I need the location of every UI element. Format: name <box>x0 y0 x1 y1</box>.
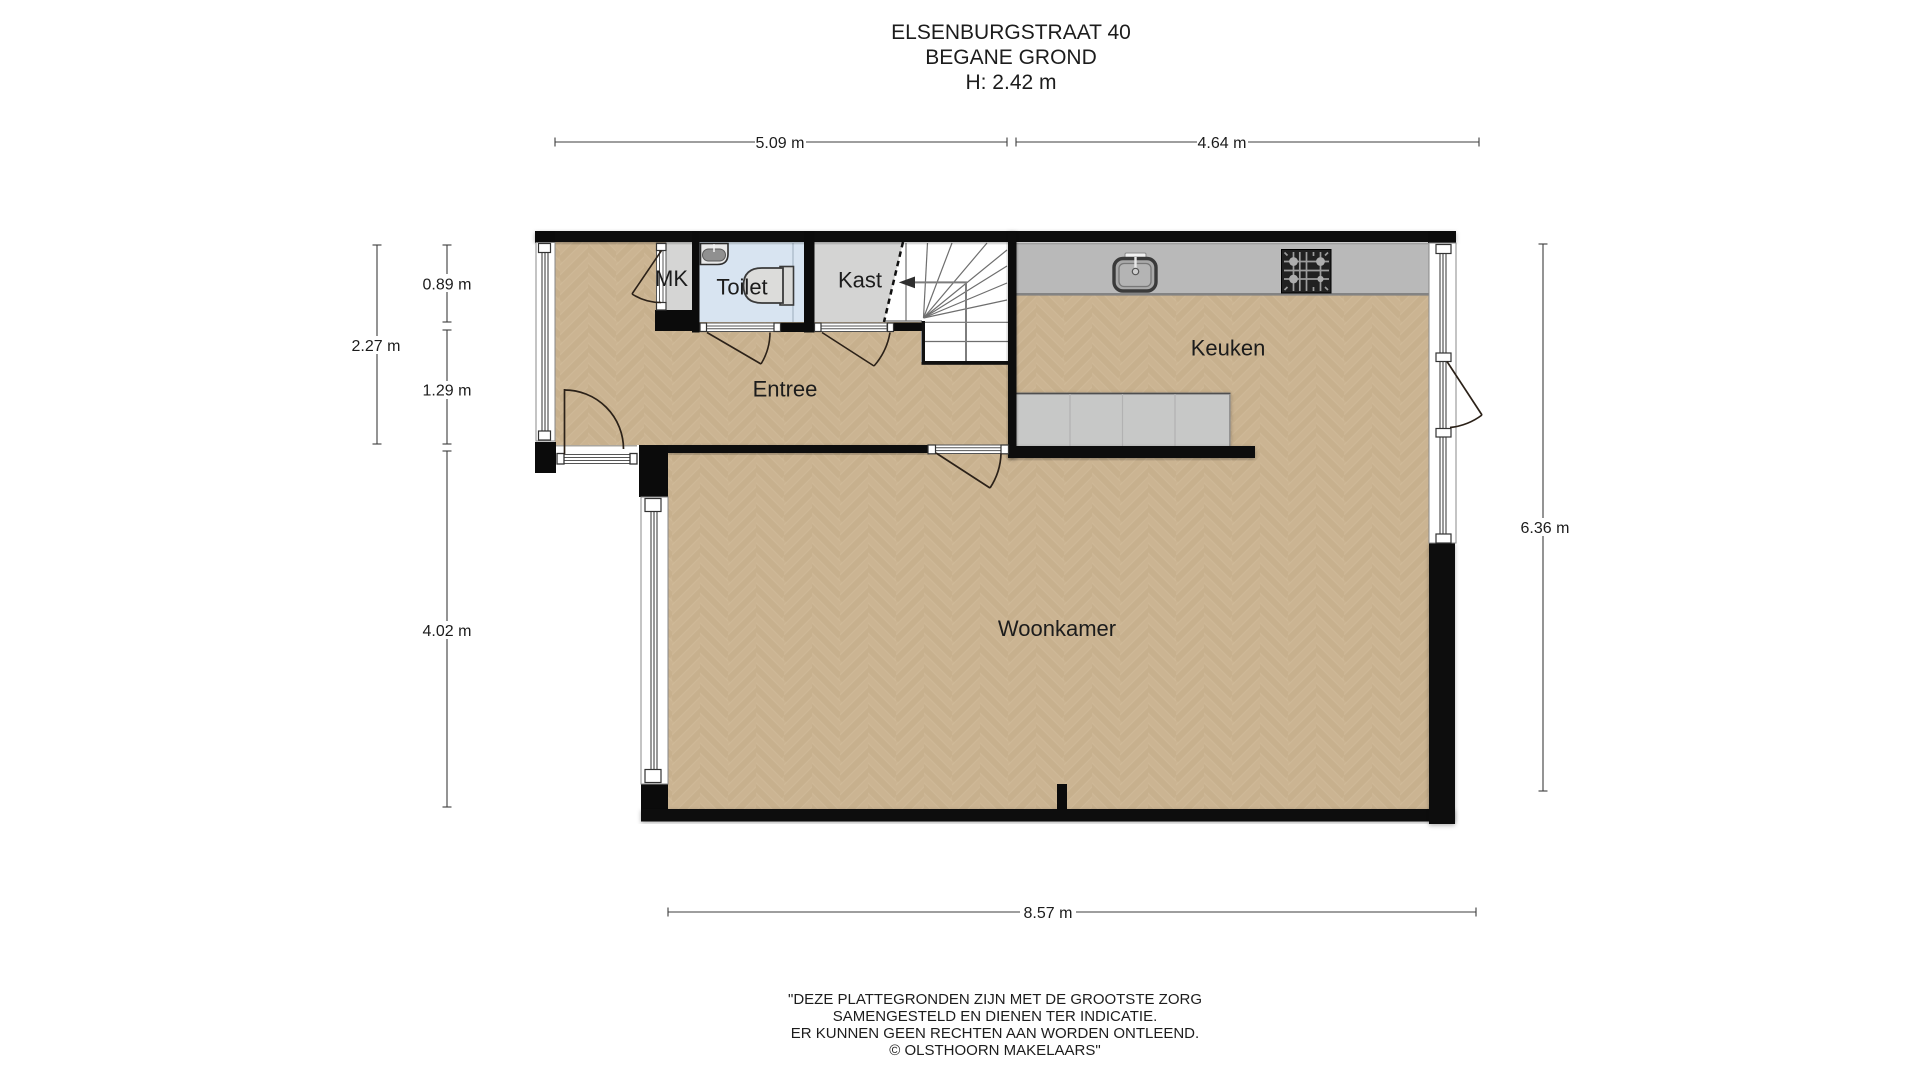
svg-text:Keuken: Keuken <box>1191 336 1266 361</box>
svg-text:MK: MK <box>655 266 688 291</box>
svg-text:4.64 m: 4.64 m <box>1198 135 1247 152</box>
svg-text:8.57 m: 8.57 m <box>1024 905 1073 922</box>
svg-text:BEGANE GROND: BEGANE GROND <box>925 46 1097 69</box>
svg-text:Toilet: Toilet <box>716 275 767 300</box>
svg-text:H: 2.42 m: H: 2.42 m <box>965 71 1056 94</box>
svg-text:4.02 m: 4.02 m <box>423 623 472 640</box>
svg-text:2.27 m: 2.27 m <box>352 338 401 355</box>
svg-text:ELSENBURGSTRAAT 40: ELSENBURGSTRAAT 40 <box>891 21 1131 44</box>
svg-text:6.36 m: 6.36 m <box>1521 520 1570 537</box>
svg-text:Kast: Kast <box>838 268 882 293</box>
svg-text:© OLSTHOORN MAKELAARS": © OLSTHOORN MAKELAARS" <box>889 1042 1100 1059</box>
svg-text:0.89 m: 0.89 m <box>423 276 472 293</box>
svg-text:Entree: Entree <box>753 377 818 402</box>
svg-text:5.09 m: 5.09 m <box>756 135 805 152</box>
svg-text:ER KUNNEN GEEN RECHTEN AAN WOR: ER KUNNEN GEEN RECHTEN AAN WORDEN ONTLEE… <box>791 1025 1199 1042</box>
svg-text:Woonkamer: Woonkamer <box>998 616 1116 641</box>
svg-text:1.29 m: 1.29 m <box>423 382 472 399</box>
svg-text:"DEZE PLATTEGRONDEN ZIJN MET D: "DEZE PLATTEGRONDEN ZIJN MET DE GROOTSTE… <box>788 991 1202 1008</box>
svg-text:SAMENGESTELD EN DIENEN TER IND: SAMENGESTELD EN DIENEN TER INDICATIE. <box>833 1008 1158 1025</box>
